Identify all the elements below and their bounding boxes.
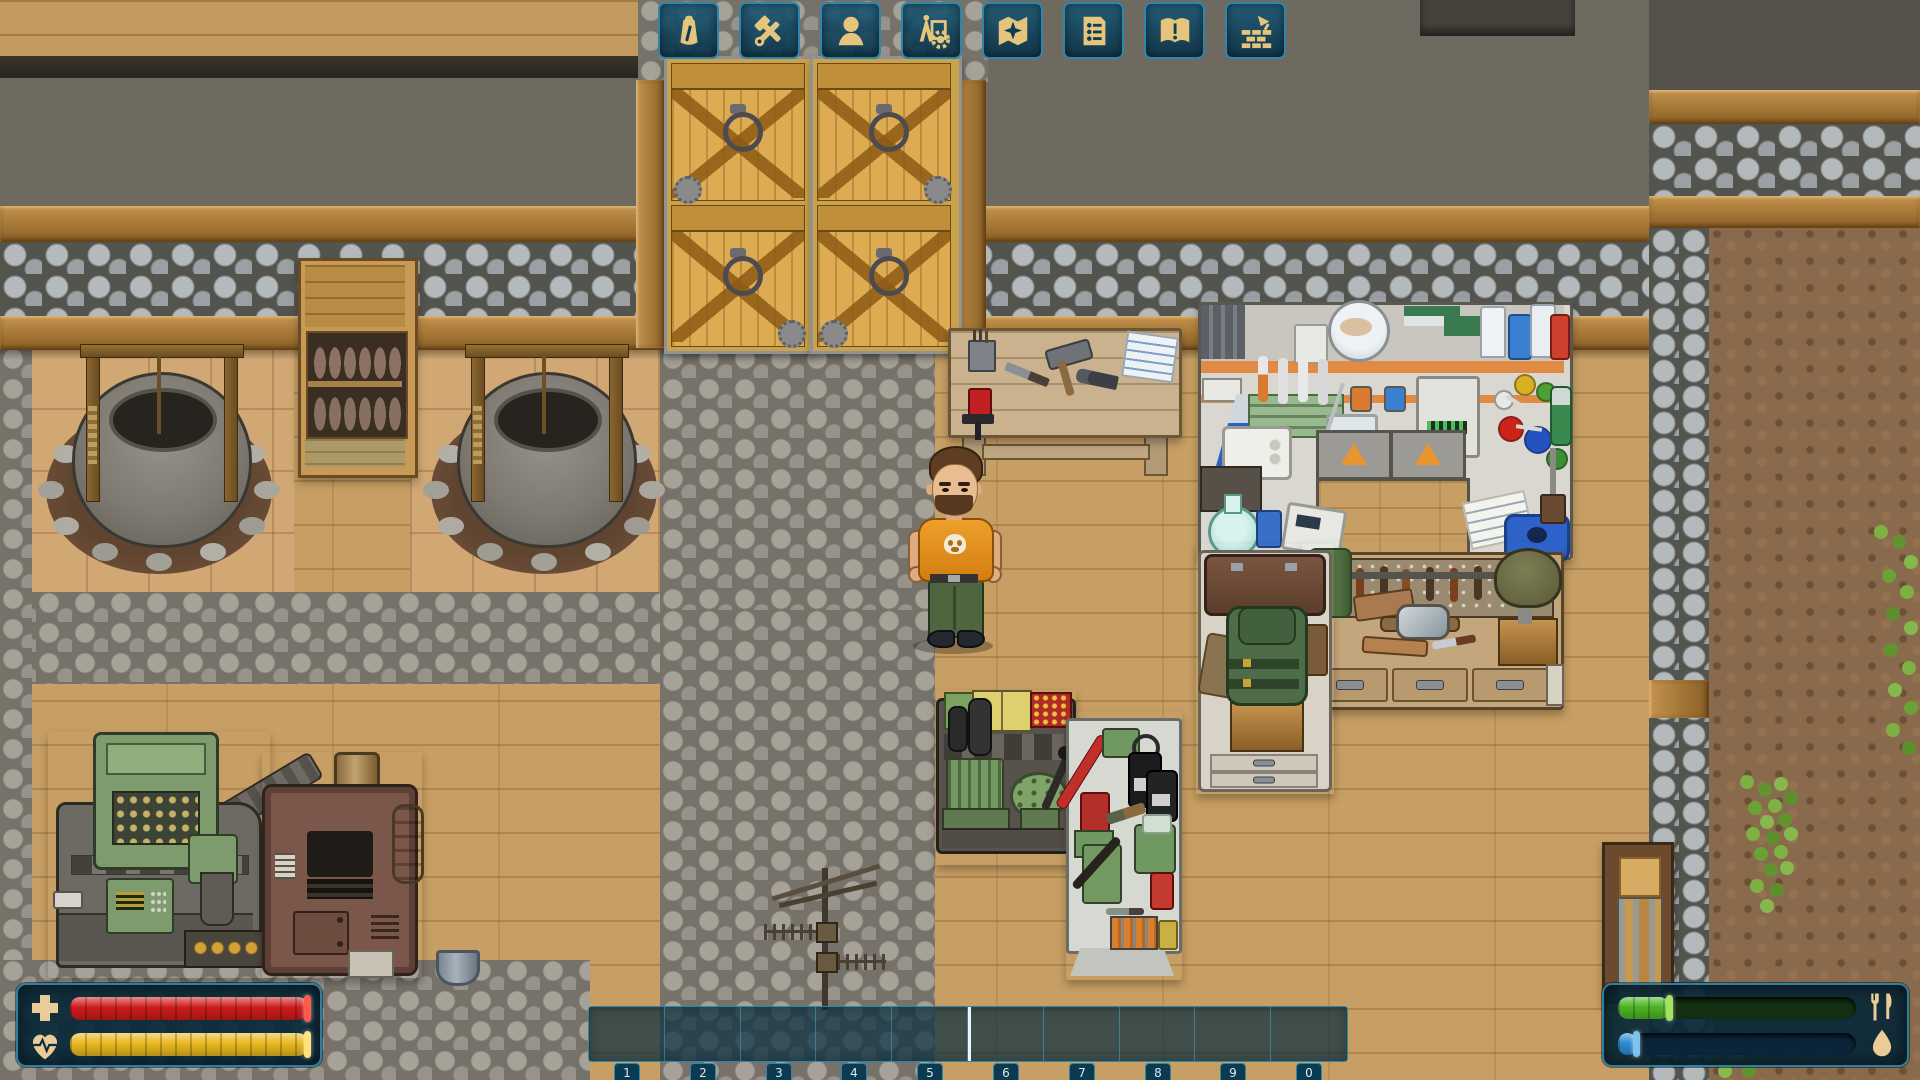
map-compass-icon — [994, 12, 1032, 50]
jar-glass-top — [1142, 814, 1172, 834]
solvent-bottle-red — [1150, 872, 1174, 910]
person-bust-icon — [832, 12, 870, 50]
well-rope-coil — [88, 406, 97, 464]
exterior-shelf — [1420, 0, 1575, 36]
door-hinge — [337, 917, 343, 923]
radio-antenna — [762, 858, 892, 1013]
mint-cable — [53, 891, 83, 909]
gate-gear — [674, 176, 702, 204]
character-shoe — [927, 630, 955, 648]
hotbar-panel — [588, 1006, 1348, 1062]
backpack-strap — [1229, 659, 1299, 669]
hotbar-key-label: 9 — [1220, 1063, 1246, 1080]
drying-cabinet-box — [306, 331, 408, 439]
toolbar-button-construction[interactable] — [901, 2, 962, 59]
main-path-upper — [660, 348, 935, 610]
lab-bottle-white — [1480, 306, 1506, 358]
character-pants — [928, 580, 984, 638]
gold-coins — [192, 940, 262, 956]
warning-triangle-icon — [1415, 443, 1441, 465]
character-shoe — [957, 630, 985, 648]
furnace[interactable] — [262, 752, 422, 978]
hotbar-key-label: 0 — [1296, 1063, 1322, 1080]
character-belt — [930, 574, 978, 583]
wall-door-panel — [1619, 857, 1661, 897]
toolbar-button-social[interactable] — [1063, 2, 1124, 59]
food-bar-fill — [1618, 997, 1670, 1019]
hotbar-slot-9[interactable] — [1195, 1007, 1271, 1061]
machine-port — [1527, 527, 1547, 543]
gate-panel — [671, 205, 805, 347]
right-wall-top-beam — [1649, 90, 1920, 124]
character-brow — [958, 482, 970, 486]
hotbar-slot-6[interactable] — [968, 1007, 1044, 1061]
drawer-handle — [1416, 680, 1444, 690]
gas-mask-skull-print — [944, 534, 966, 554]
drying-cabinet[interactable] — [298, 258, 418, 478]
health-bar-fill — [70, 997, 308, 1020]
character-face — [932, 464, 978, 516]
hotbar-slot-5[interactable] — [892, 1007, 968, 1061]
hotbar-key-label: 5 — [917, 1063, 943, 1080]
drawer-handle — [1253, 777, 1275, 784]
lab-flask-liquid — [1340, 318, 1372, 336]
character-eye — [942, 488, 949, 492]
press-cylinder — [968, 698, 992, 756]
furnace-vents — [371, 915, 399, 943]
water-well-right[interactable] — [413, 344, 675, 598]
lab-bottle-green — [1550, 386, 1572, 446]
lab-bottle-blue — [1508, 314, 1532, 360]
workbench-shelf — [982, 444, 1150, 460]
hopper-lid — [106, 743, 206, 775]
wall-door[interactable] — [1602, 842, 1674, 1004]
hotbar-slot-8[interactable] — [1120, 1007, 1196, 1061]
lab-test-tubes — [1258, 356, 1268, 402]
stamina-bar-track — [70, 1033, 308, 1056]
lab-dropper-vial — [1540, 494, 1566, 524]
plate-base — [1020, 808, 1060, 830]
brick-trowel-icon — [1237, 12, 1275, 50]
hotbar-slot-4[interactable] — [816, 1007, 892, 1061]
furnace-label — [275, 853, 295, 879]
upper-room-floor — [0, 0, 665, 58]
character-shirt — [918, 518, 994, 582]
heart-pulse-icon — [28, 1029, 62, 1061]
hanging-meat-row — [312, 337, 402, 381]
wooden-gate-right[interactable] — [810, 56, 962, 354]
keypad-buttons — [150, 890, 166, 914]
character-eye — [961, 488, 968, 492]
fork-knife-icon — [1866, 991, 1896, 1023]
right-wall-wood-cap — [1649, 680, 1709, 718]
stamina-bar-cap — [304, 1031, 311, 1058]
wooden-gate-left[interactable] — [664, 56, 816, 354]
reloading-bench[interactable] — [1066, 712, 1182, 980]
hotbar-key-label: 7 — [1069, 1063, 1095, 1080]
lab-bottle-red-cross — [1550, 314, 1570, 360]
molecule-atom — [1498, 416, 1524, 442]
skull-eye — [948, 540, 953, 546]
antenna-junction — [816, 952, 838, 973]
furnace-opening — [307, 831, 373, 877]
lab-stripe — [1201, 361, 1564, 373]
side-path-left — [0, 592, 660, 684]
stand-drawer[interactable] — [1210, 754, 1318, 772]
furnace-side-pipe — [392, 804, 424, 884]
stamina-bar-fill — [70, 1033, 308, 1056]
well-crossbeam — [80, 344, 244, 358]
blueprint-paper — [1121, 331, 1179, 384]
well-rope-coil — [473, 406, 482, 464]
antenna-comb — [764, 924, 822, 940]
medical-cross-icon — [30, 993, 60, 1023]
toolbar-button-character[interactable] — [820, 2, 881, 59]
backpack-strap — [1229, 679, 1299, 689]
hotbar-key-label: 1 — [614, 1063, 640, 1080]
furnace-grill — [307, 879, 373, 899]
briefcase-clasp — [1231, 563, 1243, 571]
hotbar-key-label: 3 — [766, 1063, 792, 1080]
warning-triangle-icon — [1341, 443, 1367, 465]
upper-room-edge — [0, 56, 665, 80]
backpack — [1226, 606, 1308, 706]
top-toolbar — [658, 2, 1258, 58]
armorbench-drawer[interactable] — [1472, 668, 1548, 702]
screwdriver — [1106, 908, 1144, 915]
supply-box — [348, 950, 394, 978]
gate-ring-handle — [723, 112, 763, 152]
drying-cabinet-top — [305, 265, 405, 327]
hotbar-slot-2[interactable] — [665, 1007, 741, 1061]
well-hole — [109, 388, 217, 452]
furnace-door[interactable] — [293, 911, 349, 955]
needs-panel — [1602, 983, 1909, 1067]
lab-warning-drawer — [1316, 430, 1392, 480]
coin-tray — [184, 930, 270, 968]
keypad-screen — [116, 892, 144, 910]
stand-wood-block — [1230, 702, 1304, 752]
gate-gear — [820, 320, 848, 348]
lab-clamp-vial — [1384, 386, 1406, 412]
pants-seam — [953, 586, 956, 630]
gate-lintel — [672, 64, 804, 90]
pegboard-rail — [1326, 572, 1522, 579]
gate-ring-handle — [869, 256, 909, 296]
toolbar-button-inventory[interactable] — [658, 2, 719, 59]
well-post-right — [224, 350, 238, 502]
hotbar-key-label: 6 — [993, 1063, 1019, 1080]
backpack-flap — [1238, 607, 1296, 645]
gate-panel — [817, 205, 951, 347]
hotbar-slot-1[interactable] — [589, 1007, 665, 1061]
mint-keypad-box — [106, 878, 174, 934]
skull-snout — [951, 547, 959, 552]
drying-cabinet-base — [305, 439, 405, 467]
lab-cylinder — [1294, 324, 1328, 364]
gate-ring-handle — [723, 256, 763, 296]
water-bar-fill — [1618, 1033, 1637, 1055]
water-well-left[interactable] — [28, 344, 290, 598]
gate-lintel — [818, 206, 950, 232]
well-hole — [494, 388, 602, 452]
brass-tin — [1158, 920, 1178, 950]
lab-flask-neck — [1224, 494, 1242, 514]
character-beard — [935, 495, 973, 515]
ammobench-drawer-band — [942, 828, 1064, 848]
vitals-panel — [16, 983, 322, 1067]
game-viewport: 1 2 3 4 5 6 7 8 9 0 — [0, 0, 1920, 1080]
compass-gear-icon — [913, 12, 951, 50]
character-brow — [939, 482, 951, 486]
hanging-meat-row — [312, 387, 402, 433]
reloadbench-base — [1070, 948, 1174, 976]
exterior-roof-corner — [1649, 0, 1920, 92]
hotbar-slot-3[interactable] — [741, 1007, 817, 1061]
lubricant-jar — [1134, 824, 1176, 874]
lab-warning-drawer — [1390, 430, 1466, 480]
lab-stand-pipe — [1404, 306, 1460, 316]
roster-list-icon — [1075, 12, 1113, 50]
hammer-wrench-icon — [751, 12, 789, 50]
backpack-stand-table[interactable] — [1196, 544, 1334, 794]
armorbench-drawer[interactable] — [1392, 668, 1468, 702]
gate-panel — [671, 63, 805, 201]
gate-lintel — [672, 206, 804, 232]
helmet-stand-block — [1498, 618, 1558, 666]
bullet-tray — [1110, 916, 1158, 950]
mint-spout — [200, 872, 234, 926]
toolbar-button-quests[interactable] — [1144, 2, 1205, 59]
hotbar-slot-0[interactable] — [1271, 1007, 1347, 1061]
pencil-cup — [968, 340, 996, 372]
stand-drawer[interactable] — [1210, 772, 1318, 788]
hotbar-key-label: 2 — [690, 1063, 716, 1080]
antenna-junction — [816, 922, 838, 943]
coin-mint-machine[interactable] — [48, 732, 270, 978]
gate-panel — [817, 63, 951, 201]
press-cylinder — [948, 706, 968, 752]
well-rope — [157, 356, 161, 434]
drawer-handle — [1496, 680, 1524, 690]
gate-post-left — [636, 80, 666, 348]
gate-ring-handle — [869, 112, 909, 152]
ammo-workbench[interactable] — [936, 690, 1076, 865]
armor-workbench[interactable] — [1302, 542, 1564, 710]
hotbar-slot-7[interactable] — [1044, 1007, 1120, 1061]
gate-lintel — [818, 64, 950, 90]
water-bar-track — [1618, 1033, 1856, 1055]
analyzer-buttons — [1269, 439, 1281, 465]
press-base — [942, 808, 1010, 830]
goggles — [1396, 604, 1450, 640]
bush-cluster-2 — [1874, 525, 1888, 539]
bush-cluster-1 — [1740, 775, 1754, 789]
molecule-atom — [1514, 374, 1536, 396]
drawer-handle — [1253, 760, 1275, 767]
toolbar-button-map[interactable] — [982, 2, 1043, 59]
backpack-buckle — [1243, 659, 1251, 667]
hotbar-key-label: 4 — [841, 1063, 867, 1080]
well-crossbeam — [465, 344, 629, 358]
right-wall-bottom-beam — [1649, 196, 1920, 228]
toolbar-button-building[interactable] — [1225, 2, 1286, 59]
well-post-right — [609, 350, 623, 502]
gate-gear — [924, 176, 952, 204]
water-drop-icon — [1868, 1027, 1896, 1059]
toolbar-button-crafting[interactable] — [739, 2, 800, 59]
player-character[interactable] — [905, 446, 1001, 656]
lab-bottle-smallblue — [1256, 510, 1282, 548]
chemistry-lab-table[interactable] — [1198, 298, 1573, 560]
health-bar-cap — [304, 995, 311, 1022]
drawer-handle — [1336, 680, 1364, 690]
food-bar-track — [1618, 997, 1856, 1019]
open-book-icon — [1156, 12, 1194, 50]
vise-handle — [975, 422, 981, 440]
belt-buckle — [948, 575, 960, 582]
exterior-ground-left — [0, 78, 640, 208]
hotbar-key-label: 8 — [1145, 1063, 1171, 1080]
bench-vise[interactable] — [962, 388, 994, 440]
dirt-yard — [1709, 228, 1920, 1080]
health-bar-track — [70, 997, 308, 1020]
lab-binders — [1201, 305, 1245, 359]
meter-screen — [1295, 514, 1321, 530]
metal-bucket — [436, 950, 480, 986]
bottle-label — [1152, 794, 1170, 806]
right-wall-stone-band — [1649, 124, 1920, 196]
well-rope — [542, 356, 546, 434]
food-bar-cap — [1666, 995, 1673, 1021]
hopper-slot — [112, 791, 200, 845]
gate-gear — [778, 320, 806, 348]
helmet — [1494, 548, 1562, 608]
water-bar-cap — [1633, 1031, 1640, 1057]
power-strip — [1546, 664, 1564, 706]
hotbar: 1 2 3 4 5 6 7 8 9 0 — [588, 1006, 1346, 1080]
pencils — [973, 330, 976, 342]
backpack-icon — [670, 12, 708, 50]
lab-clamp-vial — [1350, 386, 1372, 412]
